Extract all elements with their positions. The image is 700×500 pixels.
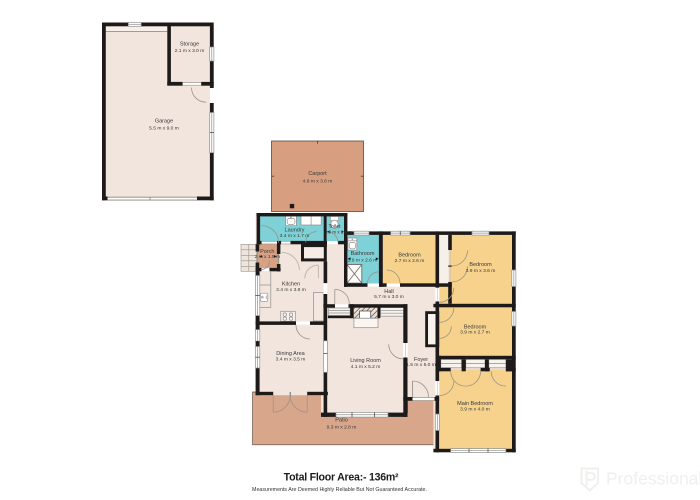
svg-text:Patio: Patio [335, 418, 348, 424]
svg-text:Foyer: Foyer [414, 357, 428, 363]
svg-text:2 m x 1.5 m: 2 m x 1.5 m [255, 254, 281, 260]
svg-text:4.1 m x 5.2 m: 4.1 m x 5.2 m [351, 364, 381, 370]
svg-text:Main Bedroom: Main Bedroom [457, 401, 493, 407]
svg-text:Professional: Professional [606, 469, 700, 489]
svg-text:Porch: Porch [260, 249, 274, 255]
svg-text:2.1 m x 3.0 m: 2.1 m x 3.0 m [175, 48, 205, 54]
svg-text:5.7 m x 3.0 m: 5.7 m x 3.0 m [374, 294, 404, 300]
svg-text:Dining Area: Dining Area [276, 351, 305, 357]
svg-text:2.7 m x 2.6 m: 2.7 m x 2.6 m [395, 258, 425, 264]
svg-text:4.8 m x 3.6 m: 4.8 m x 3.6 m [303, 179, 333, 185]
svg-text:Total Floor Area:- 136m²: Total Floor Area:- 136m² [284, 472, 399, 484]
svg-text:Storage: Storage [180, 41, 199, 47]
svg-text:Kitchen: Kitchen [282, 282, 300, 288]
svg-text:3.9 m x 3.6 m: 3.9 m x 3.6 m [466, 268, 496, 274]
svg-text:1.9 m x 2.6 m: 1.9 m x 2.6 m [348, 258, 378, 264]
svg-text:9.3 m x 2.8 m: 9.3 m x 2.8 m [327, 424, 357, 430]
svg-text:3.4 m x 3.5 m: 3.4 m x 3.5 m [276, 356, 306, 362]
svg-text:Bedroom: Bedroom [398, 253, 421, 259]
svg-text:Laundry: Laundry [285, 228, 305, 234]
svg-text:Bathroom: Bathroom [351, 251, 375, 257]
svg-text:3.4 m x 1.7 m: 3.4 m x 1.7 m [280, 233, 310, 239]
svg-text:Living Room: Living Room [350, 358, 381, 364]
svg-text:Carport: Carport [308, 171, 327, 177]
svg-text:3.4 m x 3.8 m: 3.4 m x 3.8 m [276, 287, 306, 293]
svg-text:Bedroom: Bedroom [469, 262, 492, 268]
svg-text:Bedroom: Bedroom [464, 324, 487, 330]
svg-text:3.9 m x 4.0 m: 3.9 m x 4.0 m [460, 407, 490, 413]
svg-text:5.5 m x 9.0 m: 5.5 m x 9.0 m [149, 126, 179, 132]
svg-text:3.9 m x 2.7 m: 3.9 m x 2.7 m [460, 330, 490, 336]
svg-text:Garage: Garage [155, 119, 173, 125]
svg-text:Hall: Hall [384, 289, 393, 295]
svg-text:Measurements Are Deemed Highly: Measurements Are Deemed Highly Reliable … [252, 487, 427, 493]
svg-text:1.5 m x 5.0 m: 1.5 m x 5.0 m [406, 362, 436, 368]
